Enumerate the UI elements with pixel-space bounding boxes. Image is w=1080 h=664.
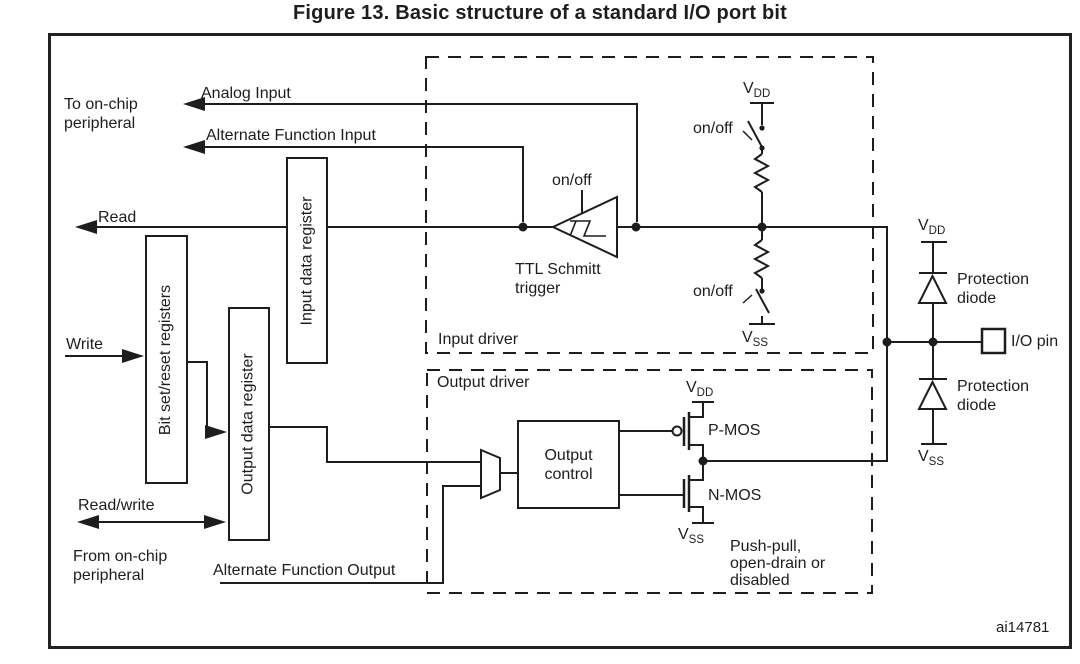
lower-diode-icon bbox=[919, 382, 946, 409]
vdd-pullup-label: VDD bbox=[743, 79, 770, 104]
from-on-chip-peripheral-label: From on-chip peripheral bbox=[73, 547, 167, 585]
push-pull-label: Push-pull, open-drain or disabled bbox=[730, 538, 825, 589]
bit-set-reset-registers-label: Bit set/reset registers bbox=[158, 284, 176, 434]
output-control-label-line2: control bbox=[544, 465, 592, 484]
read-label: Read bbox=[98, 208, 136, 227]
output-control-box: Output control bbox=[517, 420, 620, 509]
bitsetreset-to-odr-connector bbox=[188, 362, 227, 439]
pullup-onoff-label: on/off bbox=[693, 119, 733, 138]
nmos-label: N-MOS bbox=[708, 486, 761, 505]
vss-protection-label: VSS bbox=[918, 447, 944, 472]
alternate-function-output-label: Alternate Function Output bbox=[213, 561, 395, 580]
gate-bubble-icon bbox=[673, 427, 682, 436]
ttl-schmitt-trigger-label: TTL Schmitt trigger bbox=[515, 260, 601, 298]
figure-title: Figure 13. Basic structure of a standard… bbox=[0, 2, 1080, 25]
input-driver-dashed-box bbox=[426, 57, 873, 353]
read-write-arrow bbox=[77, 515, 226, 529]
to-on-chip-peripheral-label: To on-chip peripheral bbox=[64, 95, 138, 133]
write-label: Write bbox=[66, 335, 103, 354]
input-data-register-label: Input data register bbox=[298, 196, 316, 325]
bit-set-reset-registers-box: Bit set/reset registers bbox=[145, 235, 188, 484]
figure-code-label: ai14781 bbox=[996, 618, 1049, 637]
protection-diode-lower-label: Protection diode bbox=[957, 377, 1029, 415]
pmos-label: P-MOS bbox=[708, 421, 760, 440]
datasheet-figure: Figure 13. Basic structure of a standard… bbox=[0, 0, 1080, 664]
input-driver-label: Input driver bbox=[438, 330, 518, 349]
output-control-label-line1: Output bbox=[544, 446, 592, 465]
io-pin-label: I/O pin bbox=[1011, 332, 1058, 351]
output-driver-label: Output driver bbox=[437, 373, 529, 392]
io-pin-pad bbox=[982, 329, 1005, 353]
pulldown-onoff-label: on/off bbox=[693, 282, 733, 301]
upper-diode-icon bbox=[919, 276, 946, 303]
vss-pulldown-label: VSS bbox=[742, 328, 768, 353]
read-write-label: Read/write bbox=[78, 496, 154, 515]
vdd-protection-label: VDD bbox=[918, 216, 945, 241]
vdd-output-label: VDD bbox=[686, 378, 713, 403]
gate-wires bbox=[620, 431, 683, 495]
analog-input-arrow bbox=[183, 97, 637, 222]
pullup-switch-resistor bbox=[743, 103, 774, 240]
onoff-pointer-bottom bbox=[743, 295, 752, 303]
protection-diode-upper-label: Protection diode bbox=[957, 270, 1029, 308]
onoff-pointer-top bbox=[743, 131, 752, 140]
analog-input-label: Analog Input bbox=[201, 84, 291, 103]
mux-symbol bbox=[481, 450, 500, 498]
odr-to-mux-wire bbox=[270, 427, 481, 462]
input-data-register-box: Input data register bbox=[286, 157, 328, 364]
alternate-function-input-label: Alternate Function Input bbox=[206, 126, 376, 145]
vss-output-label: VSS bbox=[678, 525, 704, 550]
schmitt-onoff-label: on/off bbox=[552, 171, 592, 190]
pulldown-switch-resistor bbox=[743, 240, 775, 324]
output-data-register-label: Output data register bbox=[240, 353, 258, 494]
schmitt-trigger-symbol bbox=[553, 190, 617, 257]
output-data-register-box: Output data register bbox=[228, 307, 270, 541]
alternate-function-input-arrow bbox=[183, 140, 523, 222]
main-io-net bbox=[617, 227, 982, 461]
